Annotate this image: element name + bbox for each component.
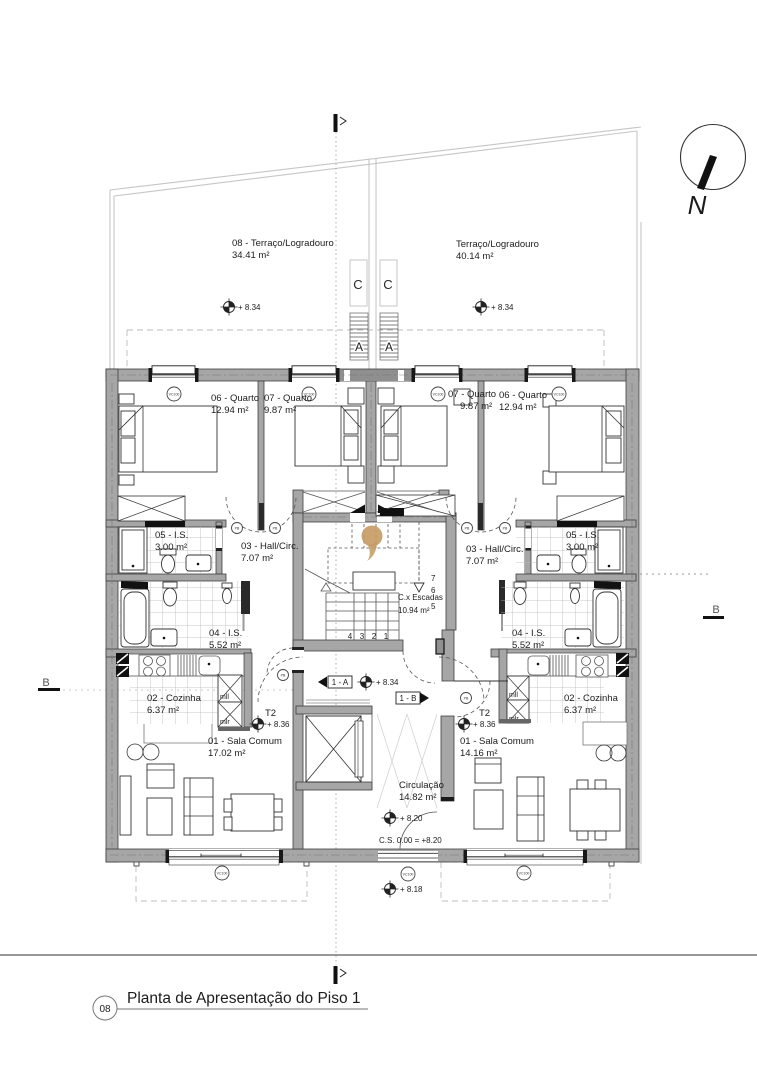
svg-text:mlr: mlr [220,719,230,726]
svg-text:01 - Sala Comum: 01 - Sala Comum [460,736,534,747]
svg-text:Planta de Apresentação do Piso: Planta de Apresentação do Piso 1 [127,990,361,1007]
svg-text:1: 1 [384,632,389,641]
svg-text:02 - Cozinha: 02 - Cozinha [147,693,202,704]
svg-text:C: C [383,277,392,292]
svg-text:B: B [712,604,719,616]
svg-text:7: 7 [431,574,436,583]
svg-text:3.00 m²: 3.00 m² [566,542,598,553]
svg-text:10.94 m²: 10.94 m² [398,606,430,615]
svg-text:+ 8.34: + 8.34 [238,303,261,312]
svg-text:05 - I.S.: 05 - I.S. [155,530,188,541]
svg-text:06 - Quarto: 06 - Quarto [211,393,259,404]
svg-text:+ 8.36: + 8.36 [473,720,496,729]
svg-text:T2: T2 [265,708,276,719]
svg-text:04 - I.S.: 04 - I.S. [209,628,242,639]
svg-text:3.00 m²: 3.00 m² [155,542,187,553]
svg-text:08: 08 [99,1004,111,1015]
svg-text:7.07 m²: 7.07 m² [466,556,498,567]
svg-text:1 - A: 1 - A [332,678,349,687]
svg-text:mll: mll [220,694,229,701]
svg-text:02 - Cozinha: 02 - Cozinha [564,693,619,704]
svg-text:+ 8.18: + 8.18 [400,885,423,894]
svg-text:2: 2 [372,632,377,641]
svg-text:mll: mll [509,692,518,699]
svg-text:03 - Hall/Circ.: 03 - Hall/Circ. [466,544,524,555]
svg-text:N: N [688,190,707,220]
svg-text:T2: T2 [479,708,490,719]
svg-text:34.41 m²: 34.41 m² [232,250,270,261]
svg-text:9.87 m²: 9.87 m² [264,405,296,416]
svg-text:5: 5 [431,602,436,611]
svg-text:03 - Hall/Circ.: 03 - Hall/Circ. [241,541,299,552]
svg-text:6.37 m²: 6.37 m² [147,705,179,716]
svg-text:04 - I.S.: 04 - I.S. [512,628,545,639]
svg-text:+ 8.20: + 8.20 [400,814,423,823]
svg-text:B: B [42,677,49,689]
svg-text:4: 4 [348,632,353,641]
svg-text:6.37 m²: 6.37 m² [564,705,596,716]
svg-text:14.16 m²: 14.16 m² [460,748,498,759]
svg-text:A: A [385,340,393,354]
svg-text:07 - Quarto: 07 - Quarto [264,393,312,404]
svg-text:5.52 m²: 5.52 m² [512,640,544,651]
svg-text:40.14 m²: 40.14 m² [456,251,494,262]
svg-text:07 - Quarto: 07 - Quarto [448,389,496,400]
svg-text:Circulação: Circulação [399,780,444,791]
svg-text:+ 8.34: + 8.34 [376,678,399,687]
svg-text:06 - Quarto: 06 - Quarto [499,390,547,401]
svg-text:C: C [353,277,362,292]
svg-text:Terraço/Logradouro: Terraço/Logradouro [456,239,539,250]
svg-text:17.02 m²: 17.02 m² [208,748,246,759]
svg-text:C.x Escadas: C.x Escadas [398,593,443,602]
svg-text:08 - Terraço/Logradouro: 08 - Terraço/Logradouro [232,238,334,249]
svg-text:1 - B: 1 - B [400,694,417,703]
svg-text:+ 8.34: + 8.34 [491,303,514,312]
svg-text:05 - I.S.: 05 - I.S. [566,530,599,541]
svg-text:+ 8.36: + 8.36 [267,720,290,729]
svg-text:14.82 m²: 14.82 m² [399,792,437,803]
svg-text:A: A [355,340,363,354]
svg-text:9.87 m²: 9.87 m² [460,401,492,412]
svg-text:5.52 m²: 5.52 m² [209,640,241,651]
svg-text:12.94 m²: 12.94 m² [499,402,537,413]
svg-text:C.S. 0.00 = +8.20: C.S. 0.00 = +8.20 [379,836,442,845]
svg-text:01 - Sala Comum: 01 - Sala Comum [208,736,282,747]
svg-text:12.94 m²: 12.94 m² [211,405,249,416]
svg-text:3: 3 [360,632,365,641]
svg-text:7.07 m²: 7.07 m² [241,553,273,564]
